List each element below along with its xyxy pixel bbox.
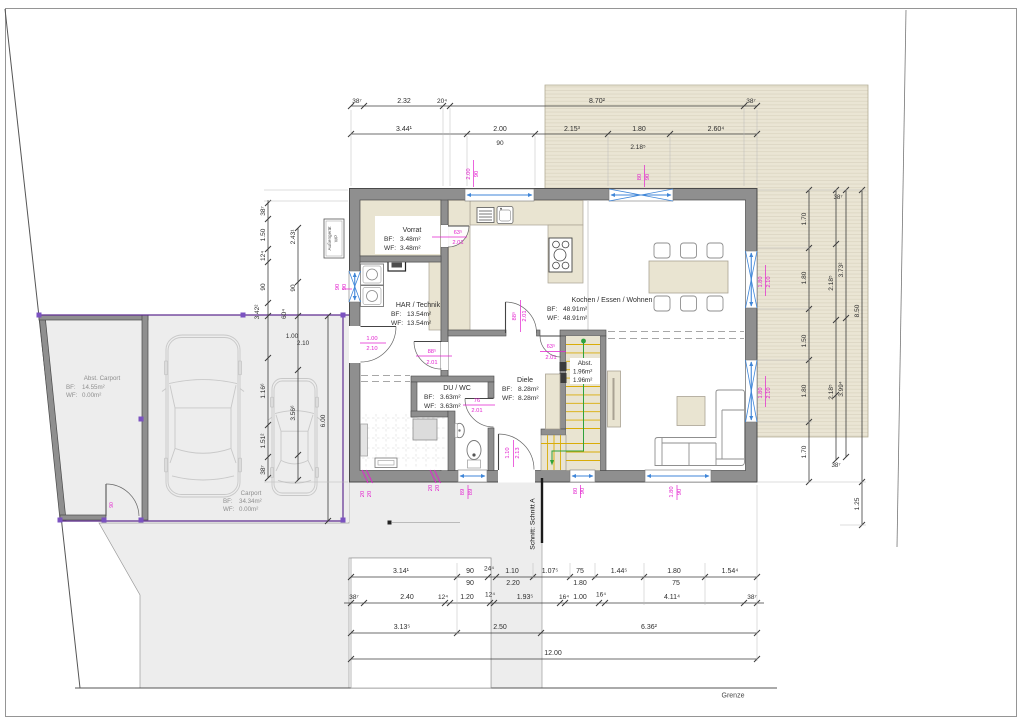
svg-text:2.00: 2.00 [466,168,472,179]
svg-text:1.25: 1.25 [854,497,861,510]
svg-text:63⁵: 63⁵ [547,343,556,350]
svg-text:16⁴: 16⁴ [559,594,569,601]
svg-text:1.80: 1.80 [669,486,675,497]
svg-text:1.80: 1.80 [758,276,764,287]
svg-text:14.55m²: 14.55m² [82,384,105,391]
svg-text:4.11⁴: 4.11⁴ [664,594,680,601]
svg-text:2.18⁵: 2.18⁵ [828,384,835,400]
svg-text:3.99⁴: 3.99⁴ [838,381,845,397]
svg-text:2.18⁵: 2.18⁵ [630,144,646,151]
svg-text:2.01: 2.01 [522,310,528,321]
svg-text:3.73²: 3.73² [838,262,845,278]
svg-text:1.10: 1.10 [505,447,511,458]
svg-text:BF:: BF: [547,306,557,313]
svg-text:63⁵: 63⁵ [454,229,463,236]
svg-text:WF:: WF: [223,506,235,513]
svg-text:2.01: 2.01 [545,355,556,361]
svg-text:DU / WC: DU / WC [443,385,471,392]
svg-text:Schnitt: Schnitt A: Schnitt: Schnitt A [530,498,537,550]
svg-text:1.80: 1.80 [667,568,681,575]
svg-text:2.32: 2.32 [397,98,411,105]
svg-text:BF:: BF: [66,384,76,391]
svg-text:1.80: 1.80 [573,580,587,587]
svg-text:1.96m²: 1.96m² [573,377,592,384]
svg-text:2.13: 2.13 [515,447,521,458]
svg-text:38⁷: 38⁷ [831,462,840,469]
svg-text:76: 76 [474,398,480,404]
svg-text:1.51²: 1.51² [260,433,267,449]
svg-text:1.50: 1.50 [801,334,808,347]
svg-text:Abst. Carport: Abst. Carport [84,375,121,382]
svg-text:13.54m²: 13.54m² [407,320,432,327]
svg-text:38⁷: 38⁷ [349,594,359,601]
svg-text:BF:: BF: [502,386,512,393]
svg-text:2.60⁴: 2.60⁴ [708,126,725,133]
svg-text:2.01: 2.01 [471,408,482,414]
svg-text:38⁷: 38⁷ [260,465,267,475]
svg-text:HAR / Technik: HAR / Technik [396,302,441,309]
svg-text:1.80: 1.80 [758,387,764,398]
svg-text:1.70: 1.70 [801,445,808,458]
svg-text:1.93⁵: 1.93⁵ [517,594,534,601]
svg-text:2.20: 2.20 [506,580,520,587]
svg-text:34.34m²: 34.34m² [239,498,262,505]
svg-text:2.10: 2.10 [366,346,377,352]
svg-text:8.28m²: 8.28m² [518,386,539,393]
svg-text:Kochen / Essen / Wohnen: Kochen / Essen / Wohnen [572,297,653,304]
svg-text:3.48m²: 3.48m² [400,245,421,252]
svg-text:1.80: 1.80 [801,271,808,284]
svg-text:1.20: 1.20 [460,594,474,601]
svg-text:2.10: 2.10 [766,387,772,398]
svg-text:2.40: 2.40 [400,594,414,601]
svg-text:1.50: 1.50 [260,228,267,241]
svg-text:38⁷: 38⁷ [833,194,842,201]
svg-text:89: 89 [460,489,466,495]
svg-text:13.54m²: 13.54m² [407,311,432,318]
svg-text:38⁷: 38⁷ [352,98,362,105]
svg-text:90: 90 [496,140,504,147]
svg-text:2.10: 2.10 [766,276,772,287]
svg-text:3.63m²: 3.63m² [440,394,461,401]
svg-text:3.63m²: 3.63m² [440,403,461,410]
svg-text:Außengerät: Außengerät [327,226,332,251]
svg-text:2.50: 2.50 [493,624,507,631]
svg-text:Vorrat: Vorrat [403,227,422,234]
svg-text:75: 75 [576,568,584,575]
svg-text:Grenze: Grenze [722,693,745,700]
svg-text:2.18⁵: 2.18⁵ [828,275,835,291]
svg-text:90: 90 [466,580,474,587]
svg-text:90: 90 [466,568,474,575]
svg-text:2.01: 2.01 [426,360,437,366]
svg-text:6.36²: 6.36² [641,624,658,631]
svg-text:0.00m²: 0.00m² [239,506,258,513]
svg-text:8.50: 8.50 [854,304,861,317]
svg-text:BF:: BF: [424,394,434,401]
svg-text:90: 90 [290,284,297,292]
svg-text:BF:: BF: [391,311,401,318]
svg-text:89: 89 [468,489,474,495]
svg-text:1.44⁵: 1.44⁵ [611,568,628,575]
svg-text:90: 90 [109,502,115,508]
svg-text:6.00: 6.00 [320,414,327,427]
svg-text:1.10: 1.10 [505,568,519,575]
svg-text:2.00: 2.00 [493,126,507,133]
svg-text:2.15³: 2.15³ [564,126,581,133]
svg-text:90: 90 [645,174,651,180]
svg-text:2.43¹: 2.43¹ [290,229,297,245]
svg-text:8.28m²: 8.28m² [518,395,539,402]
svg-text:WF:: WF: [391,320,403,327]
svg-text:Abst.: Abst. [578,360,593,367]
svg-text:1.07⁵: 1.07⁵ [542,568,559,575]
svg-text:1.80: 1.80 [632,126,646,133]
svg-text:16⁴: 16⁴ [596,592,606,599]
svg-text:1.00: 1.00 [573,594,587,601]
svg-text:Diele: Diele [517,377,533,384]
svg-text:38⁷: 38⁷ [747,594,757,601]
svg-text:3.48m²: 3.48m² [400,236,421,243]
svg-text:38⁷: 38⁷ [746,98,756,105]
svg-text:2.10: 2.10 [297,340,310,347]
svg-text:90: 90 [335,284,341,290]
svg-text:3.13⁵: 3.13⁵ [394,624,411,631]
svg-text:75: 75 [672,580,680,587]
svg-text:1.70: 1.70 [801,212,808,225]
svg-text:20: 20 [435,485,441,491]
svg-text:1.96m²: 1.96m² [573,369,592,376]
svg-text:90: 90 [580,488,586,494]
svg-text:48.91m²: 48.91m² [563,315,588,322]
svg-text:20⁴: 20⁴ [437,98,447,105]
svg-text:2.01: 2.01 [452,240,463,246]
svg-text:3.42²: 3.42² [254,304,261,320]
svg-text:1.00: 1.00 [366,336,377,342]
svg-text:1.80: 1.80 [801,384,808,397]
svg-text:8.70²: 8.70² [589,98,606,105]
svg-text:12⁴: 12⁴ [260,251,267,261]
svg-text:48.91m²: 48.91m² [563,306,588,313]
svg-text:12.00: 12.00 [544,650,562,657]
svg-text:WF:: WF: [502,395,514,402]
svg-text:3.14¹: 3.14¹ [393,568,410,575]
svg-text:WF:: WF: [66,392,78,399]
svg-text:3.56⁶: 3.56⁶ [290,405,297,421]
svg-text:BF:: BF: [384,236,394,243]
svg-text:3.44¹: 3.44¹ [396,126,413,133]
svg-text:80: 80 [637,174,643,180]
svg-text:WF:: WF: [547,315,559,322]
svg-text:90: 90 [260,283,267,291]
svg-text:BF:: BF: [223,498,233,505]
svg-text:20: 20 [428,485,434,491]
svg-text:1.54⁴: 1.54⁴ [722,568,739,575]
svg-text:Carport: Carport [241,490,262,497]
svg-text:12⁴: 12⁴ [438,594,448,601]
svg-text:24⁴: 24⁴ [484,566,494,573]
svg-text:1.00: 1.00 [286,333,299,340]
svg-text:38⁷: 38⁷ [260,206,267,216]
svg-text:20: 20 [367,491,373,497]
svg-text:90: 90 [474,171,480,177]
svg-text:0.00m²: 0.00m² [82,392,101,399]
svg-text:WP: WP [334,235,339,242]
svg-text:90: 90 [677,489,683,495]
svg-text:1.16⁶: 1.16⁶ [260,383,267,399]
svg-text:80: 80 [573,488,579,494]
svg-text:WF:: WF: [384,245,396,252]
svg-text:12⁴: 12⁴ [485,592,495,599]
svg-text:WF:: WF: [424,403,436,410]
svg-text:20: 20 [360,491,366,497]
svg-text:60⁴: 60⁴ [281,309,288,319]
svg-text:88⁵: 88⁵ [428,348,437,355]
svg-text:88⁵: 88⁵ [511,311,518,320]
